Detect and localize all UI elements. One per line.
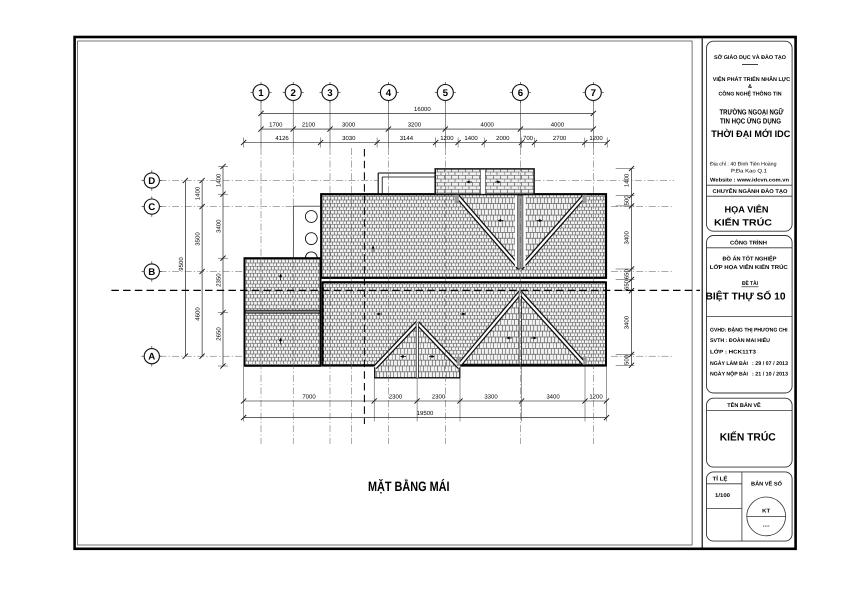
svg-text:1200: 1200 — [589, 393, 603, 400]
svg-text:VIỆN PHÁT TRIỂN NHÂN LỰC: VIỆN PHÁT TRIỂN NHÂN LỰC — [713, 76, 791, 83]
svg-text:SVTH : ĐOÀN MAI HIẾU: SVTH : ĐOÀN MAI HIẾU — [710, 337, 770, 344]
svg-text:9500: 9500 — [178, 257, 185, 271]
svg-text:: 21 / 10 / 2013: : 21 / 10 / 2013 — [752, 372, 788, 378]
svg-text:KT: KT — [762, 509, 771, 515]
svg-text:6: 6 — [518, 88, 524, 99]
svg-text:700: 700 — [523, 135, 534, 142]
svg-text:1/100: 1/100 — [715, 493, 730, 499]
svg-text:3400: 3400 — [546, 393, 560, 400]
svg-text:THỜI ĐẠI MỚI IDC: THỜI ĐẠI MỚI IDC — [711, 128, 790, 139]
svg-text:2100: 2100 — [302, 122, 316, 129]
svg-text:CÔNG TRÌNH: CÔNG TRÌNH — [730, 240, 767, 247]
svg-text:3: 3 — [327, 88, 333, 99]
svg-text:: 29 / 07 / 2013: : 29 / 07 / 2013 — [752, 361, 788, 367]
svg-text:KIẾN TRÚC: KIẾN TRÚC — [714, 217, 773, 228]
svg-text:B: B — [148, 267, 155, 278]
svg-text:HỌA VIÊN: HỌA VIÊN — [725, 204, 769, 215]
svg-text:KIẾN TRÚC: KIẾN TRÚC — [720, 431, 776, 444]
svg-text:ĐỒ ÁN TỐT NGHIỆP: ĐỒ ÁN TỐT NGHIỆP — [723, 255, 777, 263]
svg-text:&: & — [748, 84, 752, 90]
svg-text:500: 500 — [624, 354, 631, 365]
svg-text:BẢN VẼ SỐ: BẢN VẼ SỐ — [751, 481, 782, 488]
svg-text:3400: 3400 — [216, 219, 223, 233]
svg-text:16000: 16000 — [414, 106, 431, 113]
svg-text:7000: 7000 — [302, 393, 316, 400]
svg-text:1200: 1200 — [589, 135, 603, 142]
svg-text:TỈ LỆ: TỈ LỆ — [713, 475, 728, 482]
svg-text:TRƯỜNG NGOẠI NGỮ: TRƯỜNG NGOẠI NGỮ — [720, 108, 785, 117]
svg-text:3200: 3200 — [408, 122, 422, 129]
svg-text:P.Đa Kao Q.1: P.Đa Kao Q.1 — [731, 169, 767, 175]
svg-text:3030: 3030 — [342, 135, 356, 142]
svg-text:C: C — [148, 202, 155, 213]
svg-text:3400: 3400 — [624, 315, 631, 329]
svg-text:Website : www.idcvn.com.vn: Website : www.idcvn.com.vn — [710, 178, 789, 184]
svg-text:BIỆT THỰ SỐ 10: BIỆT THỰ SỐ 10 — [706, 291, 786, 303]
svg-text:4: 4 — [386, 88, 392, 99]
svg-text:1700: 1700 — [269, 122, 283, 129]
svg-text:19500: 19500 — [417, 410, 434, 417]
svg-text:A: A — [148, 352, 155, 363]
svg-text:2000: 2000 — [496, 135, 510, 142]
svg-text:GVHD: ĐẶNG THỊ PHƯƠNG CHI: GVHD: ĐẶNG THỊ PHƯƠNG CHI — [710, 327, 788, 334]
svg-text:7: 7 — [591, 88, 596, 99]
svg-text:4600: 4600 — [195, 307, 202, 321]
svg-text:2350: 2350 — [216, 273, 223, 287]
svg-text:1400: 1400 — [624, 173, 631, 187]
svg-text:3500: 3500 — [195, 232, 202, 246]
svg-text:3000: 3000 — [342, 122, 356, 129]
svg-text:4000: 4000 — [551, 122, 565, 129]
svg-text:650: 650 — [624, 269, 631, 280]
svg-text:2300: 2300 — [432, 393, 446, 400]
svg-text:ĐỀ TÀI: ĐỀ TÀI — [742, 279, 758, 287]
svg-text:1200: 1200 — [440, 135, 454, 142]
svg-text:4126: 4126 — [275, 135, 289, 142]
svg-text:4000: 4000 — [481, 122, 495, 129]
svg-text:3300: 3300 — [484, 393, 498, 400]
svg-text:500: 500 — [624, 195, 631, 206]
svg-text:3144: 3144 — [400, 135, 414, 142]
svg-text:TÊN BẢN VẼ: TÊN BẢN VẼ — [727, 402, 761, 409]
svg-text:MẶT BẰNG MÁI: MẶT BẰNG MÁI — [368, 478, 450, 494]
svg-text:CHUYÊN NGÀNH ĐÀO TẠO: CHUYÊN NGÀNH ĐÀO TẠO — [713, 188, 788, 195]
svg-text:1400: 1400 — [216, 173, 223, 187]
svg-text:SỞ GIÁO DỤC VÀ ĐÀO TẠO: SỞ GIÁO DỤC VÀ ĐÀO TẠO — [714, 54, 786, 61]
svg-text:NGÀY NỘP BÀI: NGÀY NỘP BÀI — [710, 371, 749, 378]
svg-text:LỚP : HCK11T3: LỚP : HCK11T3 — [710, 349, 756, 356]
svg-text:2650: 2650 — [216, 327, 223, 341]
svg-text:2300: 2300 — [389, 393, 403, 400]
svg-text:LỚP HỌA VIÊN KIẾN TRÚC: LỚP HỌA VIÊN KIẾN TRÚC — [710, 263, 788, 271]
svg-text:650: 650 — [624, 279, 631, 290]
svg-text:1400: 1400 — [464, 135, 478, 142]
svg-text:CÔNG NGHỆ THÔNG TIN: CÔNG NGHỆ THÔNG TIN — [719, 91, 782, 98]
svg-text:1: 1 — [258, 88, 264, 99]
svg-text:2700: 2700 — [553, 135, 567, 142]
svg-text:....: .... — [763, 523, 770, 529]
svg-text:5: 5 — [443, 88, 449, 99]
svg-text:Địa chỉ : 40 Đinh Tiên Hoàng: Địa chỉ : 40 Đinh Tiên Hoàng — [710, 162, 777, 168]
svg-text:3400: 3400 — [624, 230, 631, 244]
svg-text:TIN HỌC ỨNG DỤNG: TIN HỌC ỨNG DỤNG — [720, 117, 781, 126]
svg-text:NGÀY LÀM BÀI: NGÀY LÀM BÀI — [710, 360, 749, 367]
svg-text:2: 2 — [291, 88, 296, 99]
svg-text:D: D — [148, 176, 155, 187]
svg-text:1400: 1400 — [195, 186, 202, 200]
